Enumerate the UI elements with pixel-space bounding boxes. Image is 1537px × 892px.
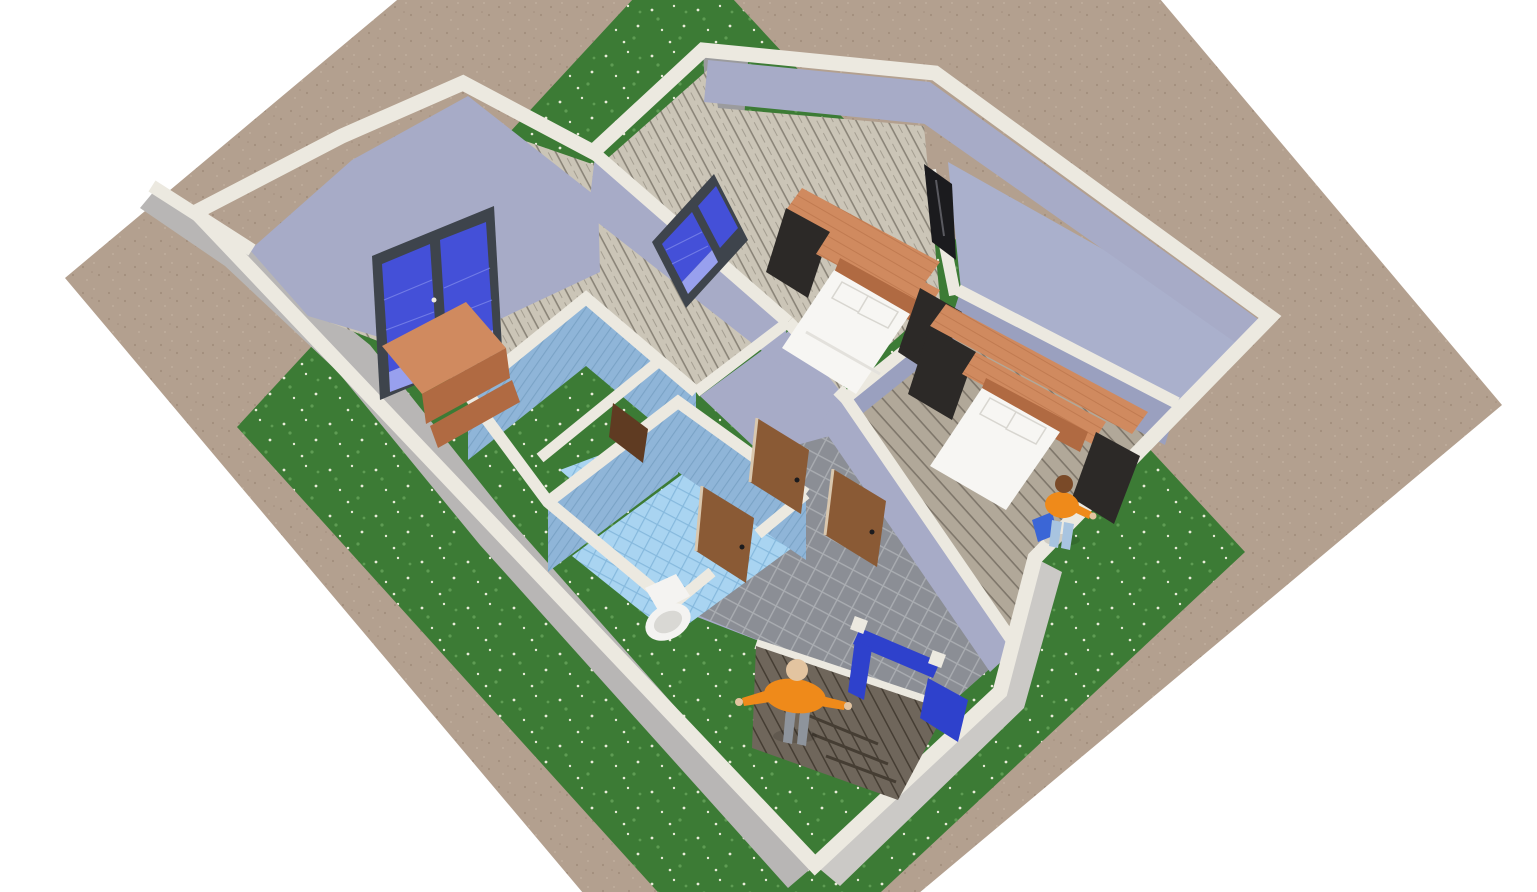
child-hand (1090, 513, 1097, 520)
3d-view[interactable] (0, 0, 1537, 892)
door-handle (795, 478, 800, 483)
man-head (786, 659, 808, 681)
man-hand (735, 698, 743, 706)
door-handle (870, 530, 875, 535)
child-head (1055, 475, 1073, 493)
door-handle (740, 545, 745, 550)
man-hand (844, 702, 852, 710)
window-handle (432, 298, 437, 303)
figure-shadow (773, 729, 817, 743)
